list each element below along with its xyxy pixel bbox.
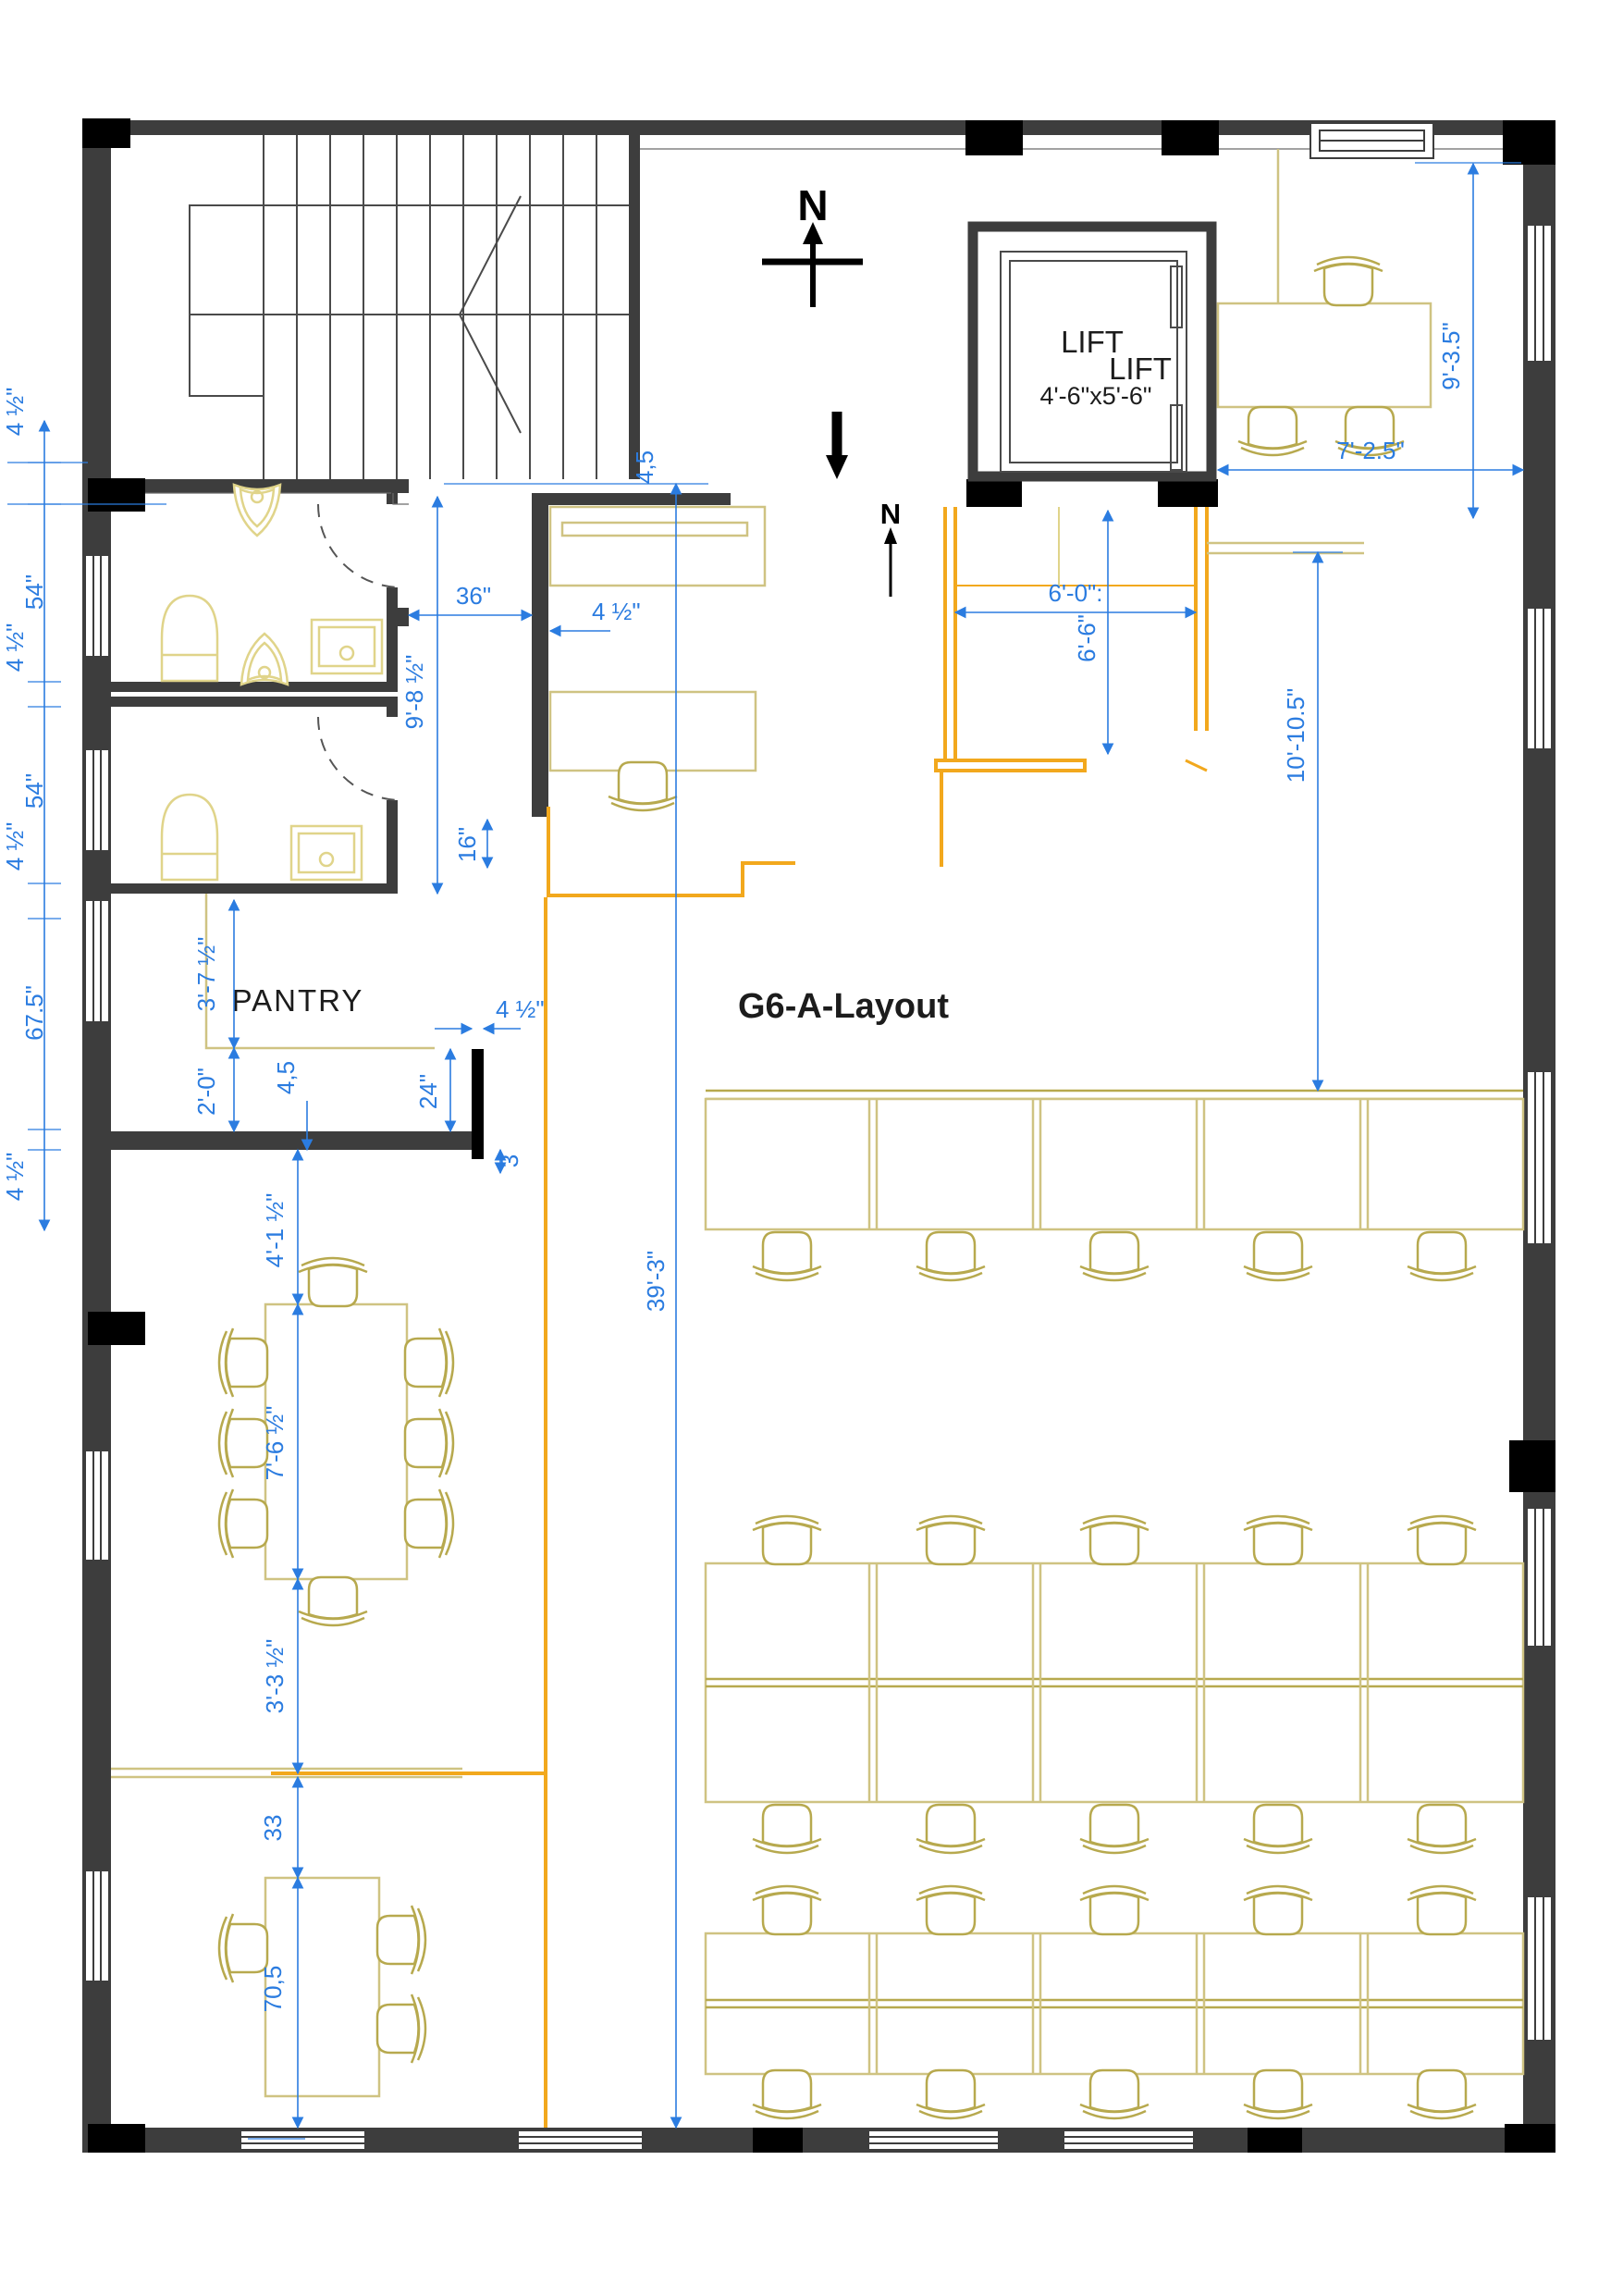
window-icon	[1527, 608, 1552, 749]
svg-text:33: 33	[259, 1815, 287, 1842]
floor-plan-drawing: LIFT LIFT 4'-6"x5'-6" PANTRY	[0, 0, 1623, 2296]
svg-text:4'-1 ½": 4'-1 ½"	[261, 1193, 289, 1268]
north-compass: N	[762, 181, 863, 307]
chair-icon	[299, 1258, 367, 1306]
svg-text:54": 54"	[20, 574, 48, 610]
chair-icon	[1080, 1805, 1149, 1853]
window-icon	[518, 2130, 643, 2150]
chair-icon	[753, 1805, 821, 1853]
entry-arrow-icon	[826, 412, 848, 479]
svg-text:2'-0": 2'-0"	[192, 1068, 220, 1116]
chair-icon	[609, 762, 677, 810]
chair-icon	[1238, 407, 1307, 455]
north-secondary: N	[880, 498, 901, 597]
desk-bank-3	[706, 1886, 1523, 2118]
svg-text:6'-6": 6'-6"	[1073, 614, 1100, 662]
chair-icon	[753, 2070, 821, 2118]
chair-icon	[1408, 1886, 1476, 1934]
svg-text:4 ½": 4 ½"	[1, 1153, 29, 1202]
svg-text:7'-6 ½": 7'-6 ½"	[261, 1406, 289, 1481]
meeting-table-group	[219, 1258, 453, 1625]
svg-text:70,5: 70,5	[259, 1966, 287, 2013]
svg-text:3'-7 ½": 3'-7 ½"	[192, 937, 220, 1012]
chair-icon	[1080, 1886, 1149, 1934]
chair-icon	[1408, 2070, 1476, 2118]
window-icon	[1527, 1896, 1552, 2041]
svg-text:16": 16"	[453, 827, 481, 862]
chair-icon	[1244, 1886, 1312, 1934]
chair-icon	[1408, 1232, 1476, 1280]
chair-icon	[916, 1805, 985, 1853]
chair-icon	[1244, 1516, 1312, 1564]
small-table-group	[219, 1878, 425, 2096]
partition-room	[936, 507, 1207, 867]
chair-icon	[377, 1906, 425, 1974]
chair-icon	[405, 1328, 453, 1397]
window-icon	[1527, 1071, 1552, 1244]
svg-text:10'-10.5": 10'-10.5"	[1282, 688, 1309, 783]
svg-text:3'-3 ½": 3'-3 ½"	[261, 1639, 289, 1714]
svg-text:4 ½": 4 ½"	[496, 995, 545, 1023]
toilet-icon	[162, 795, 217, 880]
chair-icon	[1408, 1805, 1476, 1853]
svg-text:4 ½": 4 ½"	[1, 822, 29, 871]
lift-size-label: 4'-6"x5'-6"	[1039, 382, 1151, 410]
pantry-label: PANTRY	[232, 983, 364, 1018]
lift-shaft: LIFT LIFT 4'-6"x5'-6"	[973, 227, 1211, 476]
plan-title: G6-A-Layout	[738, 987, 949, 1026]
svg-text:4 ½": 4 ½"	[1, 388, 29, 437]
pantry: PANTRY	[206, 894, 435, 1048]
chair-icon	[1314, 257, 1383, 305]
svg-text:4,5: 4,5	[272, 1061, 300, 1094]
chair-icon	[916, 1886, 985, 1934]
chair-icon	[1080, 1516, 1149, 1564]
door-swing-icon	[318, 717, 401, 800]
svg-text:39'-3": 39'-3"	[642, 1251, 670, 1312]
window-icon	[240, 2130, 365, 2150]
window-icon	[85, 900, 109, 1022]
chair-icon	[916, 2070, 985, 2118]
svg-text:4,5: 4,5	[631, 451, 658, 484]
chair-icon	[1244, 1232, 1312, 1280]
svg-text:9'-8 ½": 9'-8 ½"	[400, 655, 428, 730]
svg-text:7'-2.5": 7'-2.5"	[1336, 437, 1404, 464]
window-icon	[85, 749, 109, 851]
staircase	[190, 135, 629, 479]
lift-label-2: LIFT	[1109, 352, 1172, 386]
chair-icon	[1080, 1232, 1149, 1280]
chair-icon	[299, 1577, 367, 1625]
door-swing-icon	[318, 504, 401, 587]
svg-text:36": 36"	[456, 582, 491, 610]
sink-icon	[291, 826, 362, 880]
window-icon	[1527, 1508, 1552, 1647]
chair-icon	[405, 1409, 453, 1477]
svg-text:9'-3.5": 9'-3.5"	[1437, 322, 1465, 389]
chair-icon	[916, 1516, 985, 1564]
chair-icon	[377, 1994, 425, 2063]
svg-text:4 ½": 4 ½"	[1, 623, 29, 673]
window-icon	[1310, 123, 1433, 158]
chair-icon	[753, 1886, 821, 1934]
chair-icon	[1244, 1805, 1312, 1853]
chair-icon	[1408, 1516, 1476, 1564]
chair-icon	[916, 1232, 985, 1280]
svg-text:24": 24"	[414, 1074, 442, 1109]
window-icon	[85, 1450, 109, 1561]
manager-room-furniture	[548, 507, 795, 895]
floor-plan-sheet: LIFT LIFT 4'-6"x5'-6" PANTRY	[0, 0, 1623, 2296]
svg-text:54": 54"	[20, 773, 48, 809]
chair-icon	[1244, 2070, 1312, 2118]
urinal-icon	[234, 485, 280, 536]
desk-bank-1	[706, 1091, 1523, 1280]
desk-bank-2	[706, 1516, 1523, 1853]
window-icon	[85, 1870, 109, 1981]
window-icon	[1527, 225, 1552, 362]
svg-text:4 ½": 4 ½"	[592, 598, 641, 625]
sink-icon	[312, 620, 382, 673]
north-label-2: N	[880, 498, 901, 530]
chair-icon	[753, 1232, 821, 1280]
window-icon	[868, 2130, 999, 2150]
svg-text:3: 3	[496, 1154, 523, 1167]
chair-icon	[219, 1489, 267, 1558]
chair-icon	[405, 1489, 453, 1558]
svg-text:6'-0":: 6'-0":	[1049, 579, 1103, 607]
svg-text:67.5": 67.5"	[20, 985, 48, 1041]
chair-icon	[219, 1328, 267, 1397]
chair-icon	[1080, 2070, 1149, 2118]
top-right-desk-group	[1207, 149, 1431, 553]
chair-icon	[753, 1516, 821, 1564]
toilet-icon	[162, 596, 217, 681]
window-icon	[1064, 2130, 1194, 2150]
window-icon	[85, 555, 109, 657]
urinal-icon	[241, 634, 288, 685]
